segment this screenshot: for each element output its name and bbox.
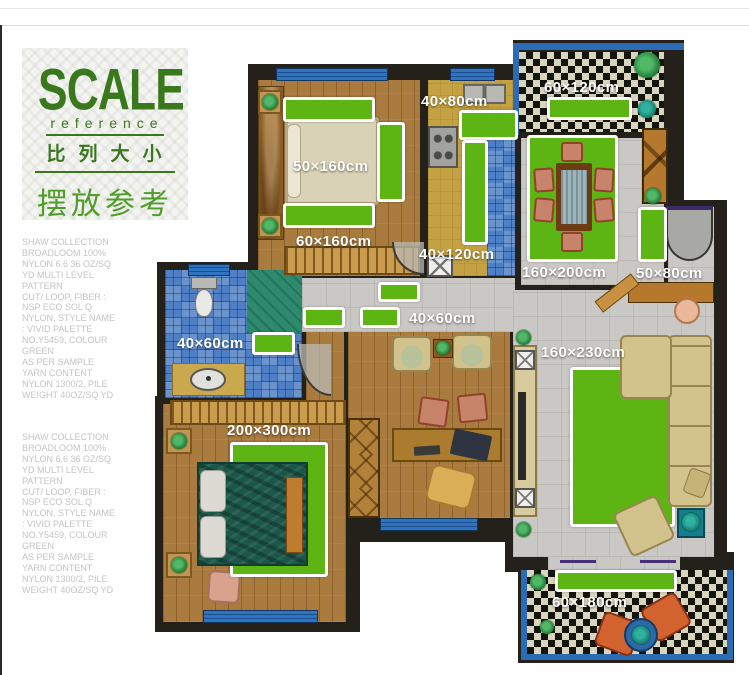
product-scale-reference-image: SCALE reference 比列大小 摆放参考 SHAW COLLECTIO… [0,0,749,675]
threshold-track [640,560,676,563]
top-divider-line [0,8,749,9]
bed2-pillow [200,516,226,558]
rug-marker-40x60-hall-c [360,307,400,328]
plant-icon [540,620,554,634]
rug-marker-40x60-bath [252,332,295,355]
rug-marker-50x160-side [377,122,405,202]
size-label-160x230: 160×230cm [541,344,625,361]
balcony-threshold [548,557,680,570]
carpet-spec-text-top: SHAW COLLECTION BROADLOOM 100% NYLON 6.6… [22,237,164,403]
left-border-line [0,25,2,675]
size-label-40x60-hall: 40×60cm [409,310,476,327]
study-chair [417,396,450,428]
size-label-40x120: 40×120cm [419,246,494,263]
balcony-top-frame [513,43,684,50]
study-armchair [392,336,432,372]
toilet-bowl [195,289,213,317]
dining-chair [533,197,555,223]
rug-marker-40x120 [462,140,488,245]
balcony-bottom-frame-right [727,570,733,660]
bed2-pillow [200,470,226,512]
dining-chair [533,167,555,192]
plant-icon [530,574,546,590]
rug-marker-40x60-hall-b [303,307,345,328]
size-label-50x80: 50×80cm [636,265,703,282]
study-armchair [452,334,492,370]
rug-marker-40x60-hall-a [378,282,420,302]
dining-chair [593,167,615,192]
size-label-200x300: 200×300cm [227,422,311,439]
size-label-160x200: 160×200cm [522,264,606,281]
scale-title-block: SCALE reference 比列大小 摆放参考 [22,48,188,220]
plant-icon [682,513,700,531]
title-chinese-size: 比列大小 [35,136,174,173]
carpet-spec-text-bottom: SHAW COLLECTION BROADLOOM 100% NYLON 6.6… [22,432,164,598]
plant-icon [516,522,531,537]
plant-icon [436,341,450,355]
rug-marker-40x80 [459,110,518,140]
tv-stand-box [515,488,535,508]
rug-marker-60x160 [283,203,375,228]
stove [428,126,458,168]
shower-area [247,270,302,333]
study-chair [457,393,489,424]
toilet-tank [191,277,217,289]
size-label-40x60-bath: 40×60cm [177,335,244,352]
plant-icon [171,557,187,573]
round-stool [674,298,700,324]
entry-door-arc [666,210,713,261]
plant-icon [634,52,660,78]
plant-icon [262,218,278,234]
balcony-bottom-frame-left [521,570,527,660]
dining-chair [561,142,583,162]
rug-marker-50x160-top [283,97,375,122]
bathroom-window [188,264,230,276]
size-label-60x120: 60×120cm [544,79,619,96]
dining-chair [561,232,583,252]
faucet-icon [206,376,211,381]
dining-table-top [561,170,587,224]
rug-marker-60x180 [555,570,677,592]
entry-bench [628,282,714,303]
title-chinese-placement: 摆放参考 [22,179,188,223]
plant-icon [638,100,656,118]
dining-chair [593,197,615,223]
plant-icon [645,188,661,204]
rug-marker-60x120 [547,97,632,120]
title-scale: SCALE [38,64,184,116]
study-window [380,518,478,531]
size-label-60x180: 60×180cm [552,594,627,611]
kitchen-window [450,68,495,81]
size-label-50x160: 50×160cm [293,158,368,175]
threshold-track [560,560,596,563]
plant-icon [632,626,650,644]
sofa-chaise [620,335,672,399]
size-label-40x80: 40×80cm [421,93,488,110]
size-label-60x160: 60×160cm [296,233,371,250]
plant-icon [262,94,278,110]
storage-closet [348,418,380,518]
plant-icon [516,330,531,345]
rug-marker-50x80 [638,207,667,262]
second-divider-line [0,25,749,26]
tv-icon [518,392,526,480]
desk-item [414,445,441,456]
bedroom1-window [276,68,388,81]
bedroom2-window [203,610,318,623]
bed2-runner [286,477,303,553]
plant-icon [171,433,187,449]
tv-stand-box [515,350,535,370]
